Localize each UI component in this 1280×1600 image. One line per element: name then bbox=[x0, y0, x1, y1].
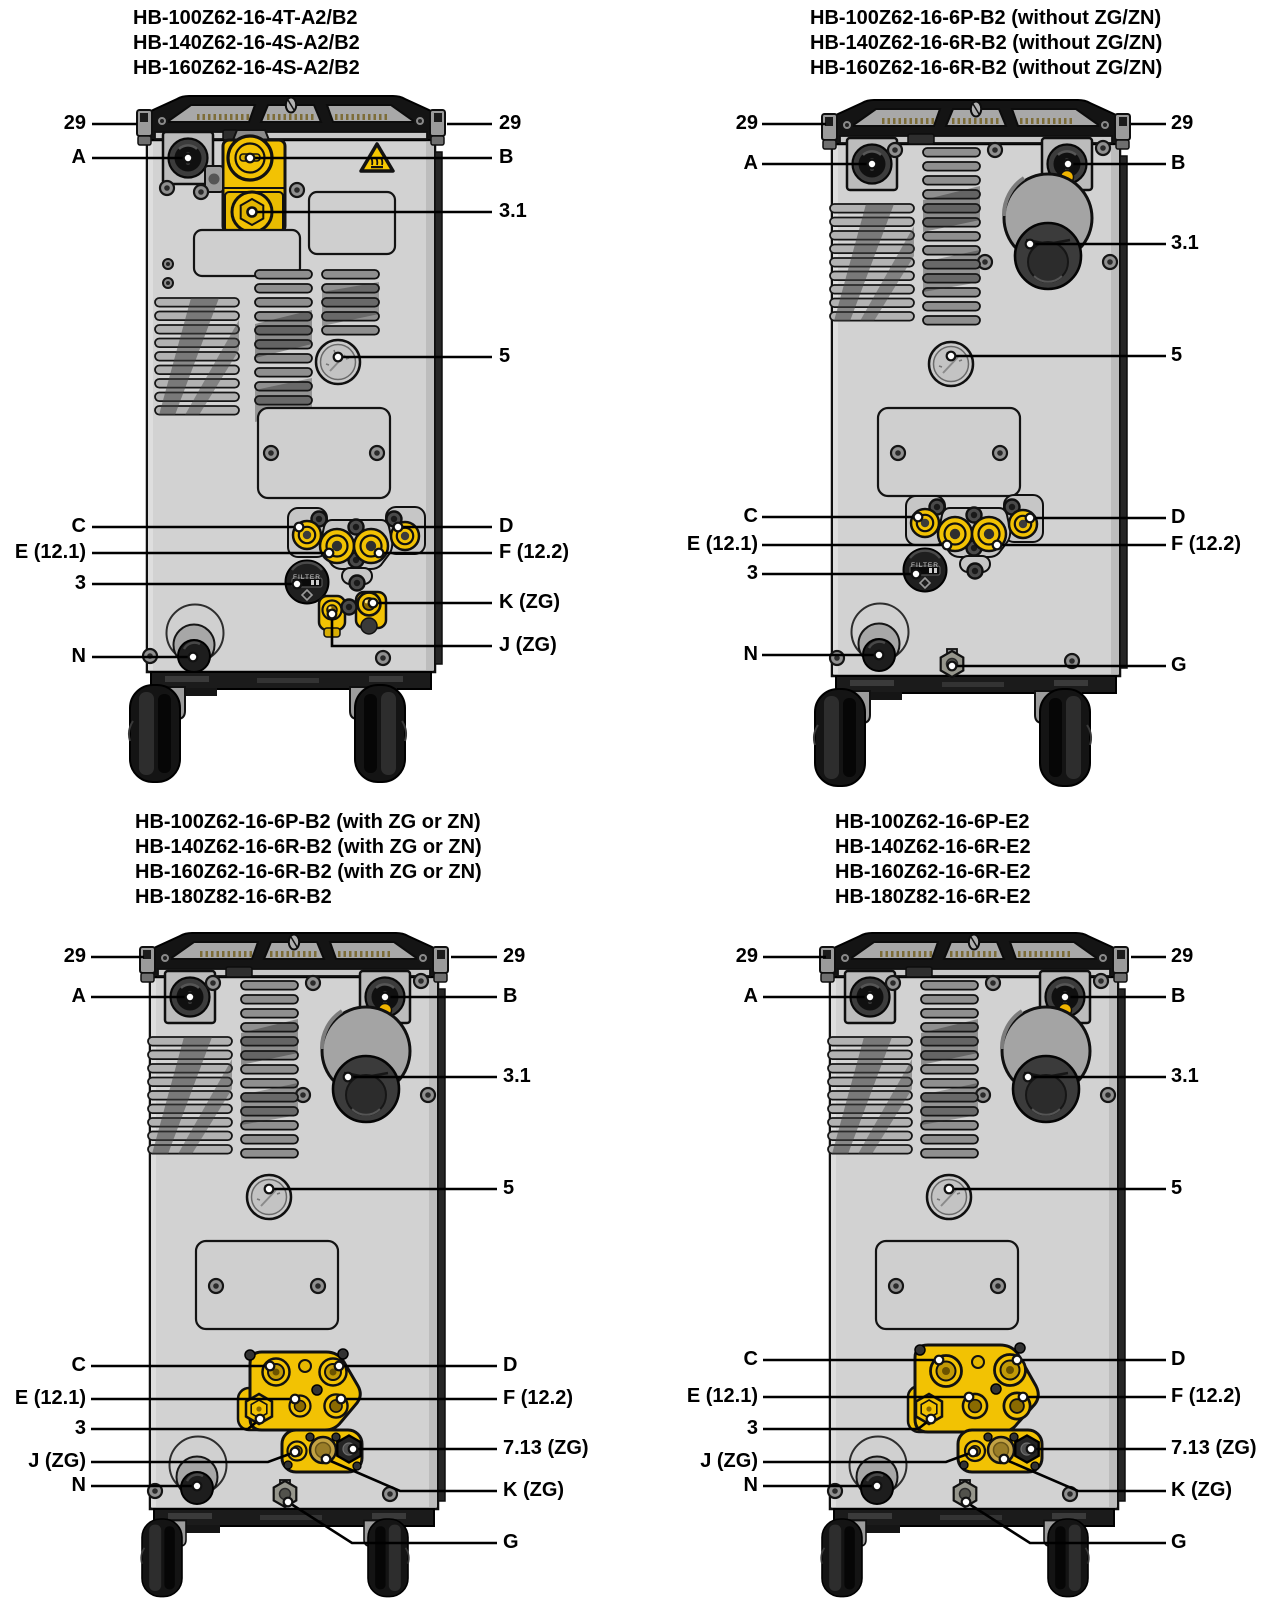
callout-label-a: A bbox=[72, 985, 86, 1008]
callout-label-c: C bbox=[72, 1354, 86, 1377]
machine-rear-view-bottom-right bbox=[820, 933, 1128, 1597]
callout-label-29: 29 bbox=[499, 112, 521, 135]
vent-grille-left bbox=[155, 298, 239, 415]
callout-label-e: E (12.1) bbox=[687, 533, 758, 556]
callout-label-j-zg: J (ZG) bbox=[700, 1450, 758, 1473]
callout-label-3: 3 bbox=[747, 562, 758, 585]
callout-label-d: D bbox=[503, 1354, 517, 1377]
callout-label-n: N bbox=[744, 643, 758, 666]
callout-label-e: E (12.1) bbox=[687, 1385, 758, 1408]
callout-label-31: 3.1 bbox=[499, 200, 527, 223]
callout-label-b: B bbox=[1171, 985, 1185, 1008]
callout-label-5: 5 bbox=[503, 1177, 514, 1200]
callout-label-f: F (12.2) bbox=[499, 541, 569, 564]
caster-wheel-right bbox=[350, 685, 406, 782]
machine-rear-view-top-left: FILTER bbox=[129, 96, 445, 782]
callout-label-a: A bbox=[72, 146, 86, 169]
machine-rear-view-top-right: FILTER bbox=[814, 100, 1130, 786]
callout-label-f: F (12.2) bbox=[1171, 1385, 1241, 1408]
panel-title: HB-140Z62-16-6R-E2 bbox=[835, 835, 1031, 860]
callout-label-k-zg: K (ZG) bbox=[499, 591, 560, 614]
panel-title: HB-140Z62-16-6R-B2 (without ZG/ZN) bbox=[810, 31, 1162, 56]
callout-label-31: 3.1 bbox=[503, 1065, 531, 1088]
panel-title: HB-100Z62-16-6P-E2 bbox=[835, 810, 1030, 835]
caster-wheel-right bbox=[1035, 689, 1091, 786]
callout-label-3: 3 bbox=[747, 1417, 758, 1440]
callout-label-5: 5 bbox=[1171, 1177, 1182, 1200]
figure-illustration: FILTER FILTER bbox=[0, 0, 1280, 1600]
callout-label-c: C bbox=[744, 505, 758, 528]
callout-label-29: 29 bbox=[736, 945, 758, 968]
panel-title: HB-180Z82-16-6R-B2 bbox=[135, 885, 332, 910]
caster-wheel-right bbox=[1044, 1519, 1089, 1597]
callout-label-c: C bbox=[744, 1348, 758, 1371]
callout-label-g: G bbox=[1171, 1531, 1187, 1554]
panel-title: HB-160Z62-16-6R-E2 bbox=[835, 860, 1031, 885]
callout-label-3: 3 bbox=[75, 1417, 86, 1440]
callout-label-d: D bbox=[499, 515, 513, 538]
callout-label-29: 29 bbox=[736, 112, 758, 135]
callout-label-f: F (12.2) bbox=[1171, 533, 1241, 556]
callout-label-713-zg: 7.13 (ZG) bbox=[1171, 1437, 1257, 1460]
callout-label-29: 29 bbox=[1171, 945, 1193, 968]
caster-wheel-left bbox=[141, 1519, 186, 1597]
callout-label-k-zg: K (ZG) bbox=[503, 1479, 564, 1502]
callout-label-j-zg: J (ZG) bbox=[499, 634, 557, 657]
panel-title: HB-160Z62-16-6R-B2 (without ZG/ZN) bbox=[810, 56, 1162, 81]
callout-label-29: 29 bbox=[1171, 112, 1193, 135]
panel-title: HB-100Z62-16-6P-B2 (without ZG/ZN) bbox=[810, 6, 1161, 31]
panel-title: HB-100Z62-16-6P-B2 (with ZG or ZN) bbox=[135, 810, 481, 835]
callout-label-k-zg: K (ZG) bbox=[1171, 1479, 1232, 1502]
caster-wheel-left bbox=[129, 685, 185, 782]
panel-title: HB-140Z62-16-4S-A2/B2 bbox=[133, 31, 360, 56]
callout-label-d: D bbox=[1171, 1348, 1185, 1371]
filter-knob-label: FILTER bbox=[911, 562, 939, 569]
callout-label-3: 3 bbox=[75, 572, 86, 595]
callout-label-n: N bbox=[744, 1474, 758, 1497]
callout-label-29: 29 bbox=[64, 112, 86, 135]
callout-label-n: N bbox=[72, 645, 86, 668]
panel-title: HB-160Z62-16-6R-B2 (with ZG or ZN) bbox=[135, 860, 482, 885]
callout-label-g: G bbox=[1171, 654, 1187, 677]
callout-label-g: G bbox=[503, 1531, 519, 1554]
caster-wheel-left bbox=[821, 1519, 866, 1597]
callout-label-j-zg: J (ZG) bbox=[28, 1450, 86, 1473]
callout-label-b: B bbox=[499, 146, 513, 169]
callout-label-29: 29 bbox=[64, 945, 86, 968]
callout-label-31: 3.1 bbox=[1171, 232, 1199, 255]
callout-label-a: A bbox=[744, 152, 758, 175]
access-panel-small bbox=[309, 192, 395, 254]
callout-label-b: B bbox=[1171, 152, 1185, 175]
machine-rear-view-bottom-left bbox=[140, 933, 448, 1597]
callout-label-e: E (12.1) bbox=[15, 541, 86, 564]
callout-label-5: 5 bbox=[1171, 344, 1182, 367]
panel-title: HB-100Z62-16-4T-A2/B2 bbox=[133, 6, 358, 31]
callout-label-c: C bbox=[72, 515, 86, 538]
callout-label-f: F (12.2) bbox=[503, 1387, 573, 1410]
panel-title: HB-140Z62-16-6R-B2 (with ZG or ZN) bbox=[135, 835, 482, 860]
panel-title: HB-160Z62-16-4S-A2/B2 bbox=[133, 56, 360, 81]
callout-label-d: D bbox=[1171, 506, 1185, 529]
panel-title: HB-180Z82-16-6R-E2 bbox=[835, 885, 1031, 910]
callout-label-31: 3.1 bbox=[1171, 1065, 1199, 1088]
callout-label-b: B bbox=[503, 985, 517, 1008]
callout-label-a: A bbox=[744, 985, 758, 1008]
callout-label-e: E (12.1) bbox=[15, 1387, 86, 1410]
caster-wheel-left bbox=[814, 689, 870, 786]
callout-label-5: 5 bbox=[499, 345, 510, 368]
callout-label-29: 29 bbox=[503, 945, 525, 968]
caster-wheel-right bbox=[364, 1519, 409, 1597]
callout-label-n: N bbox=[72, 1474, 86, 1497]
manual-figure-page: FILTER FILTER bbox=[0, 0, 1280, 1600]
callout-label-713-zg: 7.13 (ZG) bbox=[503, 1437, 589, 1460]
